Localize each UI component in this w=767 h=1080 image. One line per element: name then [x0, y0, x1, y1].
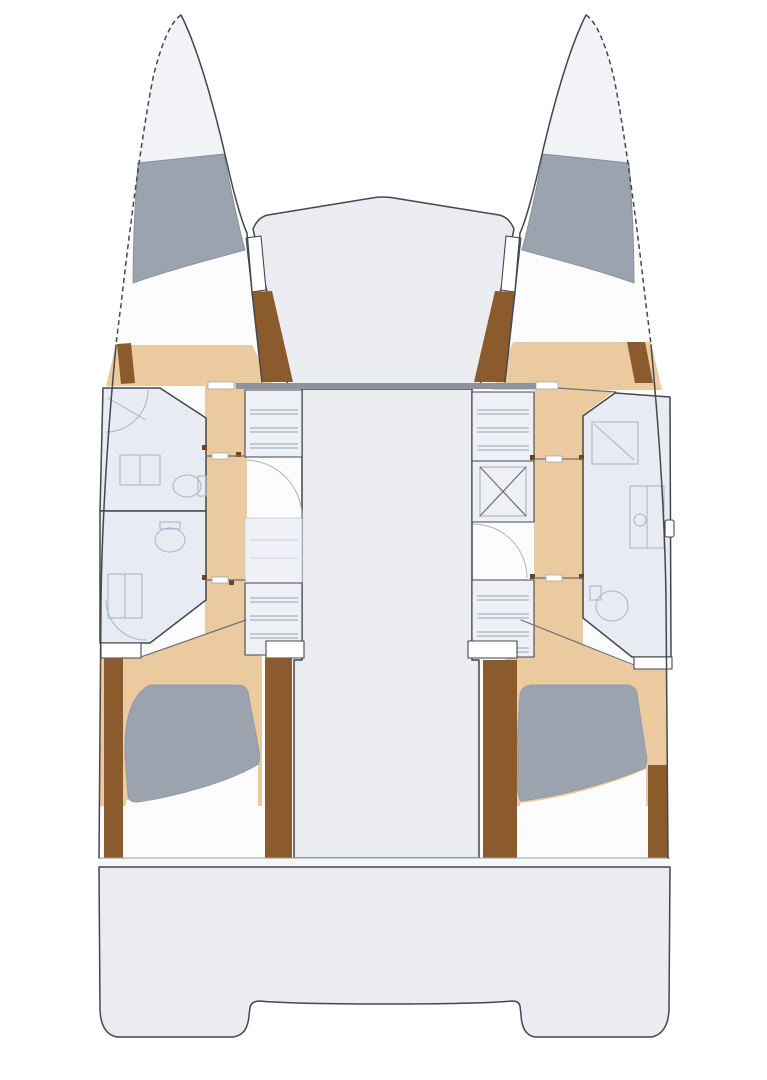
- starboard-hull-porthole: [665, 520, 674, 537]
- port-forward-doorway: [208, 382, 234, 389]
- saloon: [294, 389, 479, 858]
- saloon-front-bulkhead: [236, 383, 536, 389]
- catamaran-floor-plan: Catamaran yacht interior floor plan, top…: [0, 0, 767, 1080]
- starboard-forward-doorway: [536, 382, 558, 389]
- port-door-gap-fwd: [212, 453, 228, 459]
- cockpit-sill-band: [99, 858, 670, 867]
- floor-plan-canvas: Catamaran yacht interior floor plan, top…: [0, 0, 767, 1080]
- port-cabin-entry-step: [266, 641, 304, 658]
- foredeck: [253, 197, 514, 386]
- starboard-outboard-trim: [648, 765, 668, 858]
- starboard-door-gap-aft: [546, 575, 562, 581]
- cockpit-and-transom-steps: [99, 867, 670, 1037]
- starboard-inboard-trim: [483, 660, 517, 858]
- port-head-step: [101, 643, 141, 658]
- starboard-door-gap-fwd: [546, 456, 562, 462]
- starboard-shelf-unit-1: [472, 392, 534, 461]
- starboard-cabin-entry-step: [468, 641, 517, 658]
- hinge-dot: [202, 575, 207, 580]
- port-corridor-floor: [205, 386, 247, 660]
- port-storage-column: [245, 390, 302, 655]
- hinge-dot: [202, 445, 207, 450]
- port-door-gap-aft: [212, 577, 228, 583]
- hinge-dot: [229, 580, 234, 585]
- port-outboard-trim: [104, 658, 123, 858]
- port-shelf-unit-1: [245, 390, 302, 457]
- port-inboard-trim: [265, 658, 292, 858]
- port-shelf-unit-2: [245, 518, 302, 583]
